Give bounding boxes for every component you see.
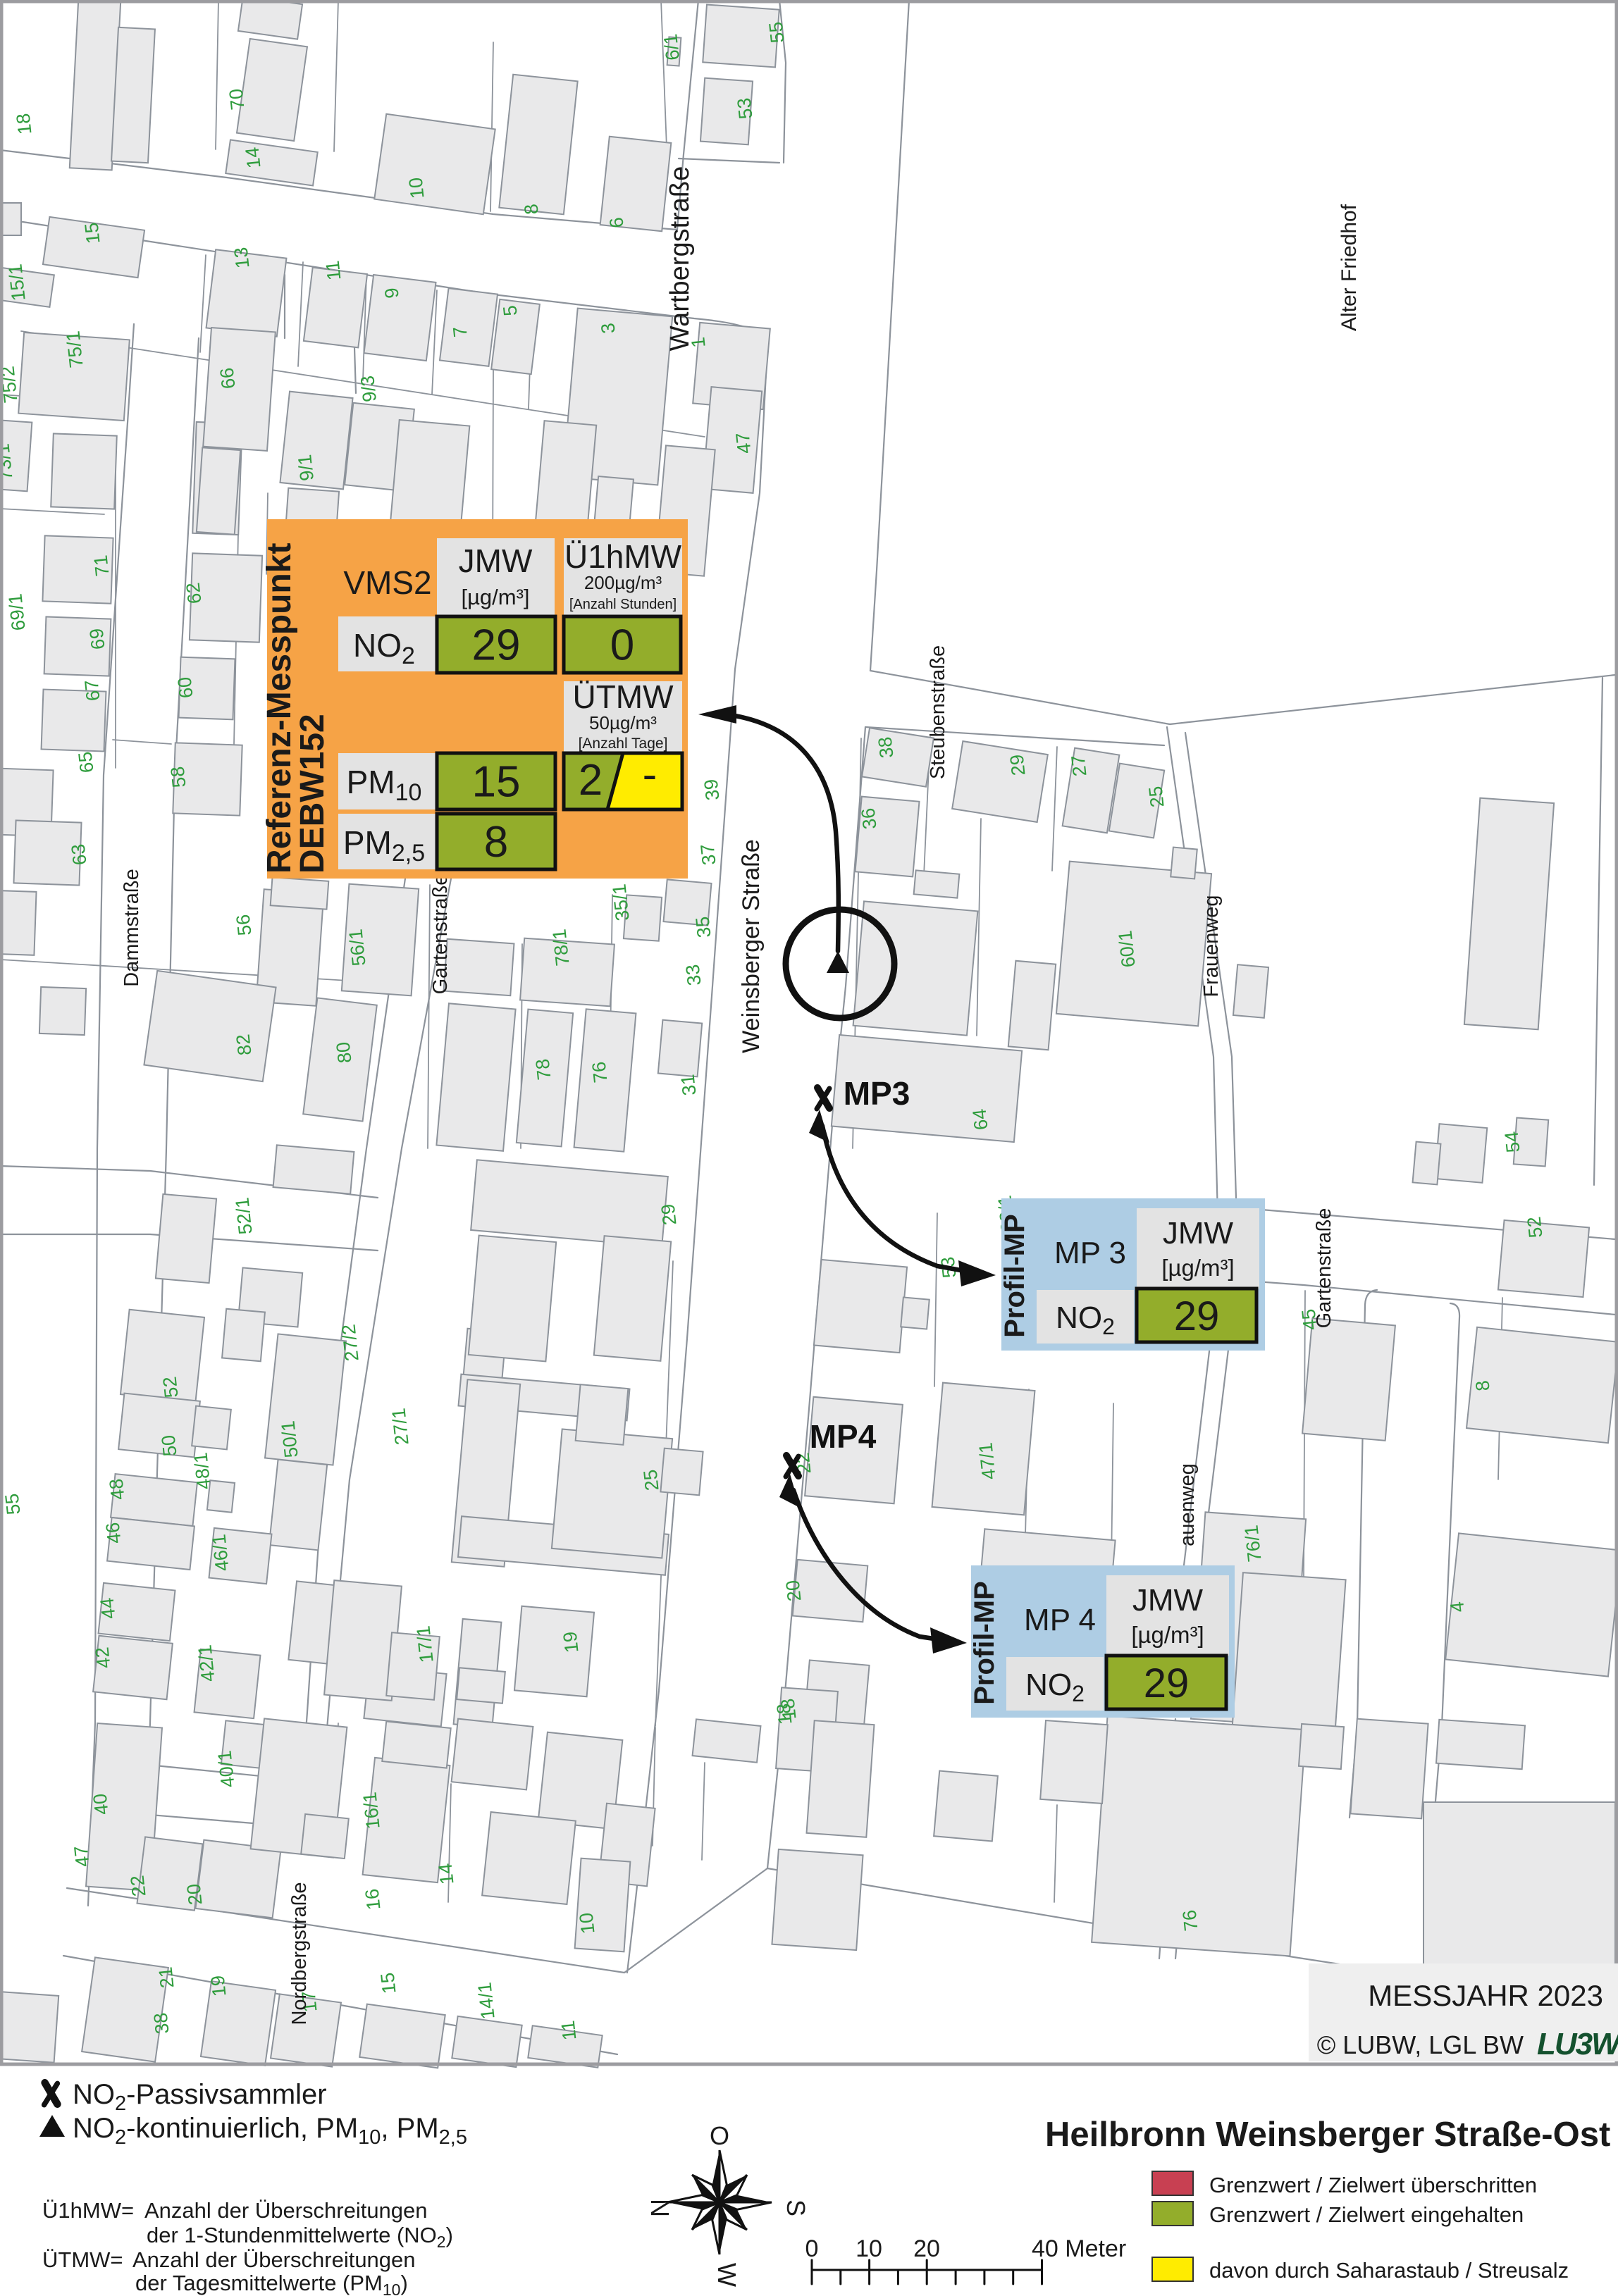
svg-text:14: 14 <box>242 146 265 169</box>
svg-text:[µg/m³]: [µg/m³] <box>461 585 529 609</box>
svg-text:[µg/m³]: [µg/m³] <box>1161 1255 1234 1281</box>
svg-text:52: 52 <box>1524 1215 1547 1239</box>
svg-text:21: 21 <box>155 1966 178 1989</box>
svg-text:55: 55 <box>1 1492 25 1515</box>
svg-text:NO2-Passivsammler: NO2-Passivsammler <box>73 2079 327 2115</box>
svg-text:69: 69 <box>86 627 109 650</box>
svg-text:10: 10 <box>856 2235 882 2262</box>
svg-text:13: 13 <box>230 246 254 269</box>
svg-text:-: - <box>643 750 657 799</box>
svg-text:8: 8 <box>484 818 508 867</box>
svg-text:0: 0 <box>610 621 634 670</box>
svg-text:29: 29 <box>1006 753 1030 776</box>
svg-text:25: 25 <box>1145 785 1168 808</box>
svg-text:VMS2: VMS2 <box>343 564 431 601</box>
svg-text:MP 3: MP 3 <box>1054 1236 1126 1270</box>
svg-text:42: 42 <box>92 1646 115 1669</box>
svg-text:Frauenweg: Frauenweg <box>1200 895 1223 997</box>
svg-text:17/1: 17/1 <box>412 1625 437 1663</box>
svg-text:6: 6 <box>605 216 627 229</box>
svg-text:27: 27 <box>1068 754 1091 777</box>
svg-text:20: 20 <box>782 1579 805 1602</box>
svg-text:Referenz-Messpunkt: Referenz-Messpunkt <box>261 543 298 874</box>
svg-text:82: 82 <box>233 1033 256 1056</box>
svg-text:19: 19 <box>207 1974 230 1997</box>
svg-text:48/1: 48/1 <box>190 1451 214 1490</box>
svg-text:Wartbergstraße: Wartbergstraße <box>665 166 695 352</box>
svg-text:46: 46 <box>102 1521 125 1544</box>
svg-text:Heilbronn Weinsberger Straße-O: Heilbronn Weinsberger Straße-Ost <box>1045 2116 1610 2154</box>
svg-text:19: 19 <box>560 1630 583 1653</box>
svg-text:7: 7 <box>449 325 471 338</box>
svg-text:36: 36 <box>858 807 881 830</box>
svg-text:Alter Friedhof: Alter Friedhof <box>1338 204 1361 331</box>
svg-text:40 Meter: 40 Meter <box>1032 2235 1126 2262</box>
svg-text:18: 18 <box>13 112 36 135</box>
svg-text:60/1: 60/1 <box>1114 929 1139 968</box>
svg-text:46/1: 46/1 <box>208 1533 233 1572</box>
svg-text:der 1-Stundenmittelwerte (NO2): der 1-Stundenmittelwerte (NO2) <box>147 2223 453 2251</box>
svg-text:Anzahl der Überschreitungen: Anzahl der Überschreitungen <box>144 2198 428 2223</box>
svg-text:MP3: MP3 <box>844 1075 910 1112</box>
svg-text:35/1: 35/1 <box>608 883 633 921</box>
svg-text:80: 80 <box>333 1041 356 1064</box>
svg-text:70: 70 <box>226 87 249 111</box>
svg-text:4: 4 <box>1446 1601 1468 1613</box>
svg-text:47/1: 47/1 <box>975 1441 999 1480</box>
svg-text:65: 65 <box>75 750 98 774</box>
svg-text:76: 76 <box>588 1060 612 1084</box>
svg-text:MESSJAHR 2023: MESSJAHR 2023 <box>1368 1979 1603 2012</box>
svg-text:Ü1hMW=: Ü1hMW= <box>42 2198 134 2223</box>
svg-text:auenweg: auenweg <box>1176 1463 1199 1546</box>
svg-text:56: 56 <box>233 913 256 936</box>
svg-text:© LUBW, LGL BW: © LUBW, LGL BW <box>1317 2030 1524 2059</box>
svg-text:6/1: 6/1 <box>660 33 684 61</box>
svg-text:Weinsberger Straße: Weinsberger Straße <box>738 839 765 1053</box>
svg-text:20: 20 <box>183 1882 206 1906</box>
svg-text:Profil-MP: Profil-MP <box>969 1581 1000 1705</box>
svg-text:der Tagesmittelwerte (PM10): der Tagesmittelwerte (PM10) <box>135 2271 408 2296</box>
svg-text:75/1: 75/1 <box>62 330 87 368</box>
svg-text:W: W <box>712 2263 741 2287</box>
svg-text:Gartenstraße: Gartenstraße <box>429 874 452 995</box>
svg-text:2: 2 <box>579 756 603 805</box>
svg-text:29: 29 <box>1174 1293 1220 1339</box>
svg-text:Gartenstraße: Gartenstraße <box>1313 1208 1335 1329</box>
svg-text:38: 38 <box>875 736 898 759</box>
svg-text:39: 39 <box>700 778 724 801</box>
svg-text:78/1: 78/1 <box>548 928 573 967</box>
svg-text:MP 4: MP 4 <box>1024 1603 1096 1637</box>
svg-text:JMW: JMW <box>459 542 533 579</box>
svg-text:14: 14 <box>435 1862 458 1885</box>
svg-text:10: 10 <box>405 176 428 199</box>
svg-text:40/1: 40/1 <box>214 1749 238 1788</box>
svg-text:[Anzahl Tage]: [Anzahl Tage] <box>579 736 668 752</box>
svg-text:11: 11 <box>322 259 345 281</box>
svg-text:55: 55 <box>765 20 789 44</box>
svg-text:15: 15 <box>472 758 521 807</box>
svg-text:29: 29 <box>472 621 521 670</box>
svg-text:35: 35 <box>692 915 715 938</box>
svg-text:29: 29 <box>1144 1661 1190 1706</box>
svg-text:[µg/m³]: [µg/m³] <box>1131 1622 1204 1648</box>
svg-text:20: 20 <box>913 2235 940 2262</box>
svg-text:60: 60 <box>174 676 197 699</box>
svg-text:27/1: 27/1 <box>388 1407 412 1446</box>
svg-text:50µg/m³: 50µg/m³ <box>589 712 657 733</box>
svg-text:44: 44 <box>97 1596 120 1620</box>
svg-text:47: 47 <box>732 431 755 454</box>
svg-text:78: 78 <box>532 1057 555 1081</box>
svg-text:15/1: 15/1 <box>4 263 29 302</box>
svg-text:48: 48 <box>106 1477 129 1501</box>
svg-text:9/3: 9/3 <box>357 375 381 403</box>
svg-text:62: 62 <box>183 581 206 604</box>
svg-text:N: N <box>646 2199 674 2217</box>
svg-text:JMW: JMW <box>1132 1583 1204 1618</box>
svg-text:67: 67 <box>81 678 104 702</box>
svg-text:42/1: 42/1 <box>194 1644 218 1682</box>
svg-text:NO2-kontinuierlich, PM10, PM2,: NO2-kontinuierlich, PM10, PM2,5 <box>73 2113 467 2149</box>
svg-text:54: 54 <box>1501 1130 1524 1153</box>
svg-text:15: 15 <box>377 1971 400 1994</box>
svg-text:47: 47 <box>70 1844 94 1868</box>
svg-text:MP4: MP4 <box>810 1418 877 1455</box>
svg-text:64: 64 <box>969 1107 992 1131</box>
svg-text:S: S <box>782 2199 810 2216</box>
svg-text:LU3W: LU3W <box>1537 2027 1618 2061</box>
svg-text:52: 52 <box>159 1375 183 1398</box>
svg-text:56/1: 56/1 <box>345 928 369 967</box>
svg-text:76/1: 76/1 <box>1240 1524 1265 1563</box>
svg-text:9/1: 9/1 <box>294 454 318 482</box>
svg-text:9: 9 <box>381 287 402 299</box>
svg-text:5: 5 <box>499 304 521 317</box>
svg-text:Steubenstraße: Steubenstraße <box>927 645 949 779</box>
svg-text:ÜTMW: ÜTMW <box>572 678 674 715</box>
svg-text:0: 0 <box>805 2235 819 2262</box>
svg-text:10: 10 <box>576 1911 599 1935</box>
svg-text:ÜTMW=: ÜTMW= <box>42 2247 123 2272</box>
svg-text:22: 22 <box>127 1874 150 1897</box>
svg-text:Anzahl der Überschreitungen: Anzahl der Überschreitungen <box>132 2247 416 2272</box>
svg-text:Grenzwert / Zielwert überschri: Grenzwert / Zielwert überschritten <box>1209 2173 1537 2197</box>
svg-text:37: 37 <box>697 843 720 866</box>
svg-text:200µg/m³: 200µg/m³ <box>584 572 662 593</box>
svg-text:Grenzwert / Zielwert eingehalt: Grenzwert / Zielwert eingehalten <box>1209 2202 1524 2227</box>
svg-text:27/2: 27/2 <box>338 1323 362 1362</box>
svg-text:58: 58 <box>167 765 190 788</box>
svg-text:[Anzahl Stunden]: [Anzahl Stunden] <box>569 597 677 612</box>
svg-text:29: 29 <box>657 1203 681 1226</box>
svg-text:11: 11 <box>557 2019 581 2041</box>
svg-text:25: 25 <box>640 1468 663 1491</box>
svg-text:69/1: 69/1 <box>4 592 29 631</box>
svg-text:31: 31 <box>677 1073 700 1096</box>
svg-text:50/1: 50/1 <box>277 1420 302 1458</box>
svg-text:18: 18 <box>773 1702 796 1725</box>
svg-text:8: 8 <box>1471 1379 1493 1392</box>
svg-text:JMW: JMW <box>1163 1216 1234 1251</box>
svg-text:40: 40 <box>89 1792 113 1816</box>
svg-text:O: O <box>710 2121 729 2150</box>
svg-text:14/1: 14/1 <box>474 1981 498 2020</box>
svg-text:8: 8 <box>520 203 542 216</box>
svg-text:66: 66 <box>216 366 240 390</box>
svg-text:33: 33 <box>682 963 705 986</box>
svg-text:53: 53 <box>734 97 757 120</box>
svg-text:16/1: 16/1 <box>359 1791 383 1830</box>
svg-text:38: 38 <box>150 2011 173 2035</box>
svg-text:Profil-MP: Profil-MP <box>999 1214 1030 1338</box>
svg-text:52/1: 52/1 <box>231 1196 256 1235</box>
svg-text:3: 3 <box>597 322 619 335</box>
svg-text:63: 63 <box>68 843 91 866</box>
svg-text:16: 16 <box>362 1887 385 1911</box>
svg-text:DEBW152: DEBW152 <box>294 714 331 874</box>
svg-text:71: 71 <box>90 554 113 577</box>
svg-text:Ü1hMW: Ü1hMW <box>564 538 682 575</box>
svg-text:50: 50 <box>158 1434 181 1457</box>
svg-text:76: 76 <box>1179 1909 1202 1932</box>
svg-text:15: 15 <box>81 221 104 244</box>
svg-text:Nordbergstraße: Nordbergstraße <box>288 1882 311 2025</box>
svg-text:davon durch Saharastaub / Stre: davon durch Saharastaub / Streusalz <box>1209 2258 1569 2283</box>
svg-text:Dammstraße: Dammstraße <box>121 869 143 987</box>
